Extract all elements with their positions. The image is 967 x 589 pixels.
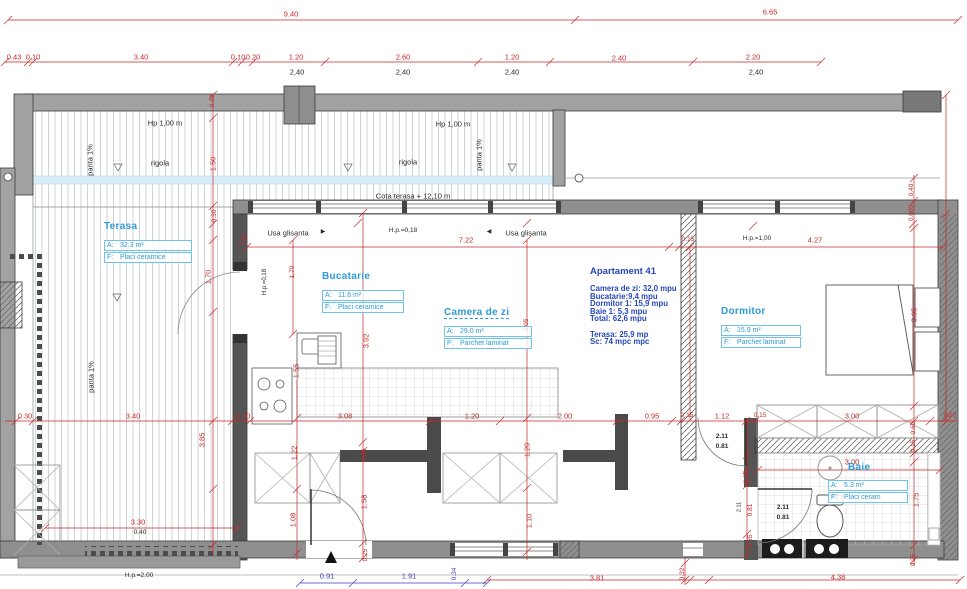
bathroom-fixtures xyxy=(758,453,940,558)
chimney-block xyxy=(284,86,315,124)
terrace-drain-strip xyxy=(33,176,553,184)
entry-door-arc xyxy=(311,490,366,545)
kitchen-fixtures xyxy=(252,333,558,424)
kitchen-counter xyxy=(297,368,558,417)
pillow xyxy=(915,332,940,371)
bedroom-furniture xyxy=(757,285,940,438)
stove xyxy=(252,368,292,424)
bath-bedroom-wall xyxy=(755,438,938,453)
floorplan-drawing xyxy=(0,0,967,589)
blue-dimension-line xyxy=(296,579,491,587)
toilet xyxy=(817,505,843,537)
living-bedroom-wall xyxy=(681,214,696,460)
floorplan-page: 9.406.650.430.103.400.100.201.202.601.20… xyxy=(0,0,967,589)
pillow xyxy=(915,288,940,327)
bedroom-door-arc xyxy=(698,418,746,466)
